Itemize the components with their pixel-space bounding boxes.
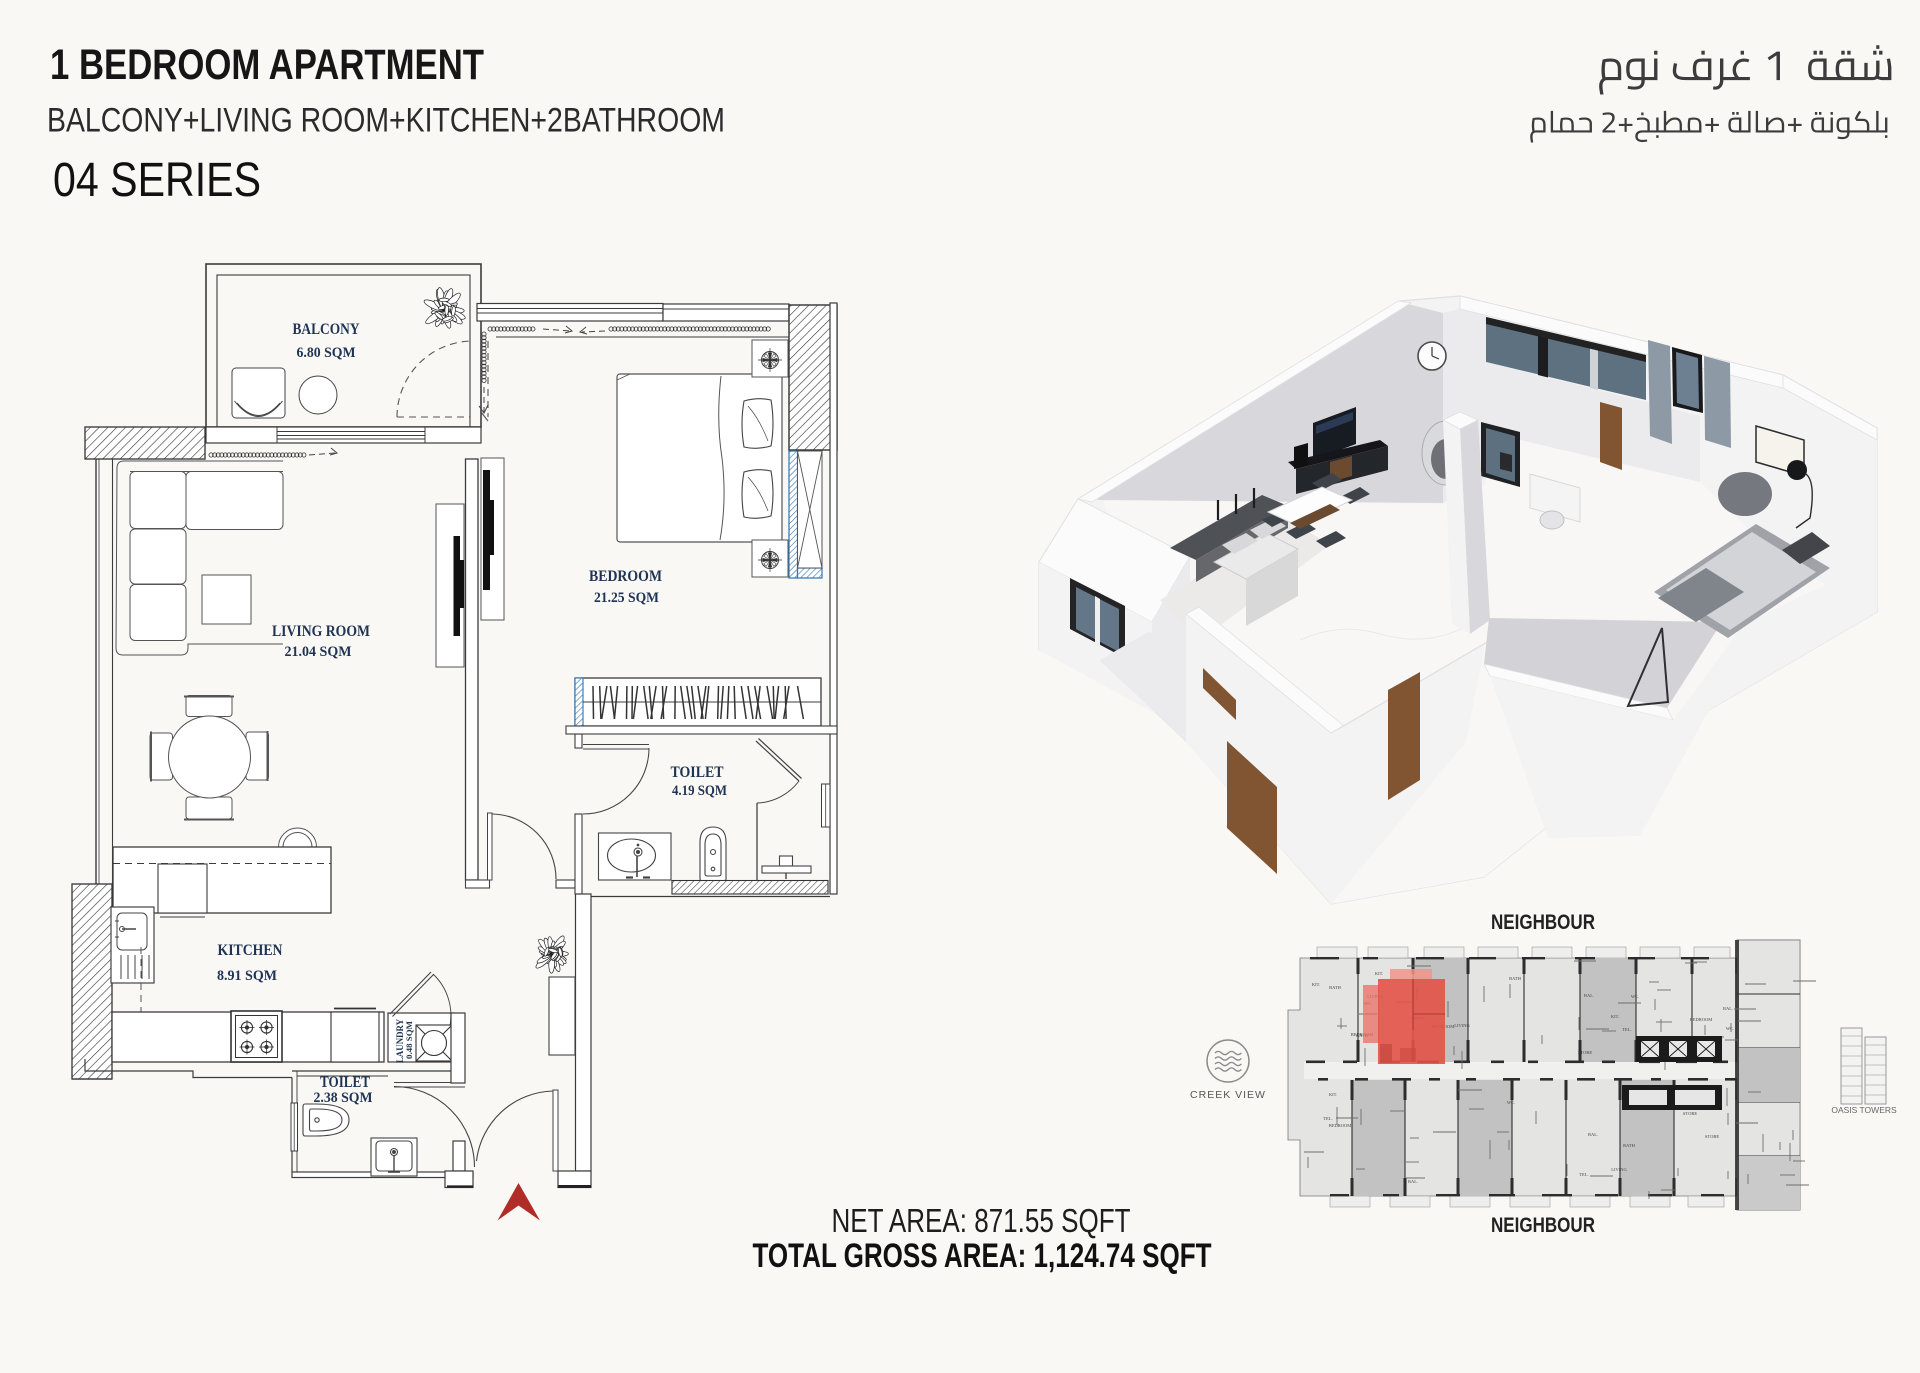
- svg-text:LIVING: LIVING: [1454, 1023, 1470, 1028]
- svg-text:KIT.: KIT.: [1312, 982, 1320, 987]
- svg-text:TOILET: TOILET: [671, 764, 724, 781]
- svg-text:BAL.: BAL.: [1408, 1179, 1418, 1184]
- svg-text:KIT.: KIT.: [1375, 971, 1383, 976]
- svg-text:NEIGHBOUR: NEIGHBOUR: [1491, 911, 1595, 934]
- svg-text:6.80 SQM: 6.80 SQM: [297, 345, 356, 361]
- svg-text:BALCONY: BALCONY: [293, 321, 360, 338]
- svg-text:BEDROOM: BEDROOM: [589, 568, 662, 585]
- svg-text:BAL.: BAL.: [1588, 1132, 1598, 1137]
- svg-text:BAL.: BAL.: [1723, 1006, 1733, 1011]
- svg-text:KIT.: KIT.: [1611, 1014, 1619, 1019]
- svg-text:WC.: WC.: [1726, 1026, 1734, 1031]
- svg-text:TEL.: TEL.: [1579, 1172, 1588, 1177]
- svg-text:BALCONY+LIVING ROOM+KITCHEN+2B: BALCONY+LIVING ROOM+KITCHEN+2BATHROOM: [47, 102, 725, 140]
- svg-text:TOTAL GROSS AREA: 1,124.74 SQF: TOTAL GROSS AREA: 1,124.74 SQFT: [753, 1237, 1212, 1275]
- svg-text:STORE: STORE: [1683, 1111, 1697, 1116]
- svg-text:CREEK VIEW: CREEK VIEW: [1190, 1089, 1266, 1101]
- svg-text:BATH: BATH: [1509, 976, 1522, 981]
- svg-text:WC.: WC.: [1631, 994, 1639, 999]
- svg-text:STORE: STORE: [1578, 1050, 1592, 1055]
- svg-text:8.91 SQM: 8.91 SQM: [217, 968, 277, 984]
- svg-text:1 BEDROOM APARTMENT: 1 BEDROOM APARTMENT: [50, 41, 484, 89]
- svg-text:OASIS TOWERS: OASIS TOWERS: [1831, 1105, 1897, 1115]
- svg-text:LIVING ROOM: LIVING ROOM: [272, 623, 370, 640]
- svg-text:21.04 SQM: 21.04 SQM: [285, 644, 352, 660]
- svg-text:STORE: STORE: [1705, 1134, 1719, 1139]
- svg-text:BEDROOM: BEDROOM: [1329, 1123, 1352, 1128]
- svg-text:BAL.: BAL.: [1584, 993, 1594, 998]
- svg-text:TOILET: TOILET: [320, 1074, 370, 1091]
- svg-text:NET AREA: 871.55 SQFT: NET AREA: 871.55 SQFT: [832, 1202, 1131, 1239]
- svg-text:KITCHEN: KITCHEN: [218, 942, 283, 959]
- svg-text:NEIGHBOUR: NEIGHBOUR: [1491, 1214, 1595, 1237]
- svg-text:TEL.: TEL.: [1622, 1027, 1631, 1032]
- svg-text:0.48 SQM: 0.48 SQM: [404, 1021, 414, 1059]
- svg-text:21.25 SQM: 21.25 SQM: [594, 590, 659, 606]
- svg-text:TEL.: TEL.: [1323, 1116, 1332, 1121]
- svg-text:2.38 SQM: 2.38 SQM: [314, 1090, 373, 1106]
- svg-text:BATH: BATH: [1623, 1143, 1636, 1148]
- svg-text:KIT.: KIT.: [1329, 1092, 1337, 1097]
- svg-text:LIVING: LIVING: [1611, 1167, 1627, 1172]
- svg-text:4.19 SQM: 4.19 SQM: [672, 783, 727, 799]
- svg-text:04 SERIES: 04 SERIES: [53, 153, 261, 207]
- svg-text:WC.: WC.: [1507, 1100, 1515, 1105]
- svg-text:BEDROOM: BEDROOM: [1690, 1017, 1713, 1022]
- svg-text:BATH: BATH: [1329, 985, 1342, 990]
